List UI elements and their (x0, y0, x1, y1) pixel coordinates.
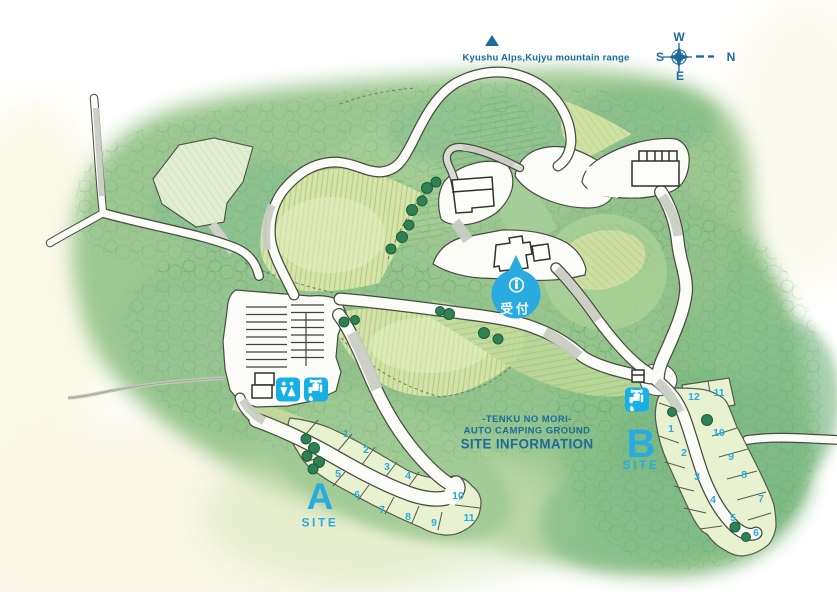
svg-text:受付: 受付 (500, 301, 531, 316)
svg-text:7: 7 (379, 504, 385, 516)
svg-text:Kyushu Alps,Kujyu mountain ran: Kyushu Alps,Kujyu mountain range (462, 53, 629, 64)
svg-text:4: 4 (710, 494, 716, 506)
svg-text:3: 3 (694, 471, 700, 483)
svg-text:8: 8 (741, 469, 747, 481)
svg-text:SITE INFORMATION: SITE INFORMATION (461, 437, 594, 452)
svg-text:8: 8 (405, 511, 411, 523)
svg-text:E: E (676, 69, 684, 83)
svg-text:9: 9 (728, 451, 734, 463)
svg-text:10: 10 (713, 427, 725, 439)
svg-text:A: A (307, 476, 334, 517)
svg-text:4: 4 (405, 470, 411, 482)
svg-text:10: 10 (452, 490, 464, 502)
svg-text:W: W (673, 30, 685, 44)
svg-text:SITE: SITE (301, 516, 338, 530)
svg-text:1: 1 (668, 423, 674, 435)
svg-text:6: 6 (753, 527, 759, 539)
svg-text:7: 7 (758, 493, 764, 505)
svg-text:2: 2 (363, 444, 369, 456)
svg-text:-TENKU NO MORI-: -TENKU NO MORI- (482, 414, 571, 425)
svg-text:11: 11 (713, 387, 724, 399)
svg-text:3: 3 (384, 461, 390, 473)
svg-text:6: 6 (354, 489, 360, 501)
svg-text:SITE: SITE (622, 458, 659, 472)
svg-text:N: N (727, 50, 736, 64)
svg-text:5: 5 (730, 512, 736, 524)
svg-text:AUTO CAMPING GROUND: AUTO CAMPING GROUND (464, 426, 591, 437)
svg-text:1: 1 (343, 428, 349, 440)
svg-text:12: 12 (688, 391, 700, 403)
svg-text:5: 5 (335, 468, 341, 480)
svg-text:2: 2 (681, 447, 687, 459)
svg-text:11: 11 (463, 512, 474, 524)
svg-text:9: 9 (431, 517, 437, 529)
svg-text:S: S (656, 50, 664, 64)
